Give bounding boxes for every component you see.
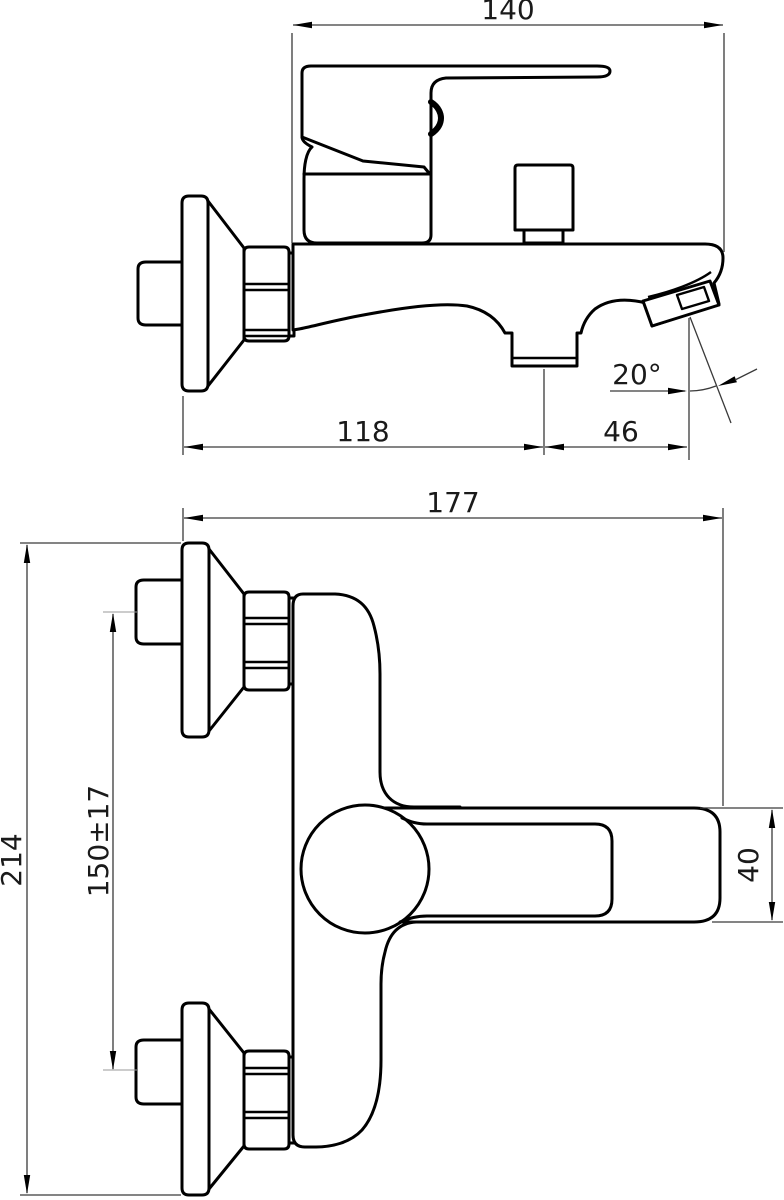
side-view bbox=[138, 66, 723, 391]
escutcheon-flange bbox=[182, 543, 209, 737]
arrowhead bbox=[184, 515, 203, 521]
arrowhead bbox=[293, 22, 312, 28]
dim-label-spout-depth: 140 bbox=[481, 0, 534, 26]
hex-nut bbox=[244, 247, 289, 341]
leader-tail bbox=[735, 369, 757, 380]
dimension-118: 118 bbox=[183, 369, 544, 455]
dim-label-outlet-to-tip: 46 bbox=[603, 415, 639, 448]
hex-nut bbox=[244, 1051, 289, 1149]
arrowhead bbox=[703, 515, 722, 521]
arrowhead bbox=[769, 902, 775, 921]
arrowhead bbox=[524, 444, 543, 450]
escutcheon-cone bbox=[208, 201, 244, 386]
supply-stub bbox=[138, 262, 182, 325]
drawing-page: 140 118 46 20° bbox=[0, 0, 784, 1200]
dim-label-overall-depth: 177 bbox=[426, 486, 479, 519]
supply-stub bbox=[136, 580, 182, 644]
dim-label-connection-centres: 150±17 bbox=[82, 785, 115, 898]
dim-label-spout-height: 40 bbox=[732, 847, 765, 883]
dim-label-wall-to-outlet: 118 bbox=[336, 415, 389, 448]
escutcheon-flange bbox=[182, 196, 208, 391]
angle-reference-line bbox=[690, 317, 731, 423]
hex-nut bbox=[244, 592, 289, 690]
arrowhead bbox=[24, 1175, 30, 1194]
arrowhead bbox=[668, 388, 687, 394]
dimension-angle-20: 20° bbox=[610, 317, 757, 423]
arrowhead bbox=[545, 444, 564, 450]
dimension-150: 150±17 bbox=[82, 612, 137, 1070]
escutcheon-cone bbox=[209, 1009, 244, 1189]
technical-drawing: 140 118 46 20° bbox=[0, 0, 784, 1200]
diverter-stem bbox=[524, 230, 563, 243]
escutcheon-flange bbox=[182, 1003, 209, 1195]
escutcheon-cone bbox=[209, 549, 244, 731]
arrowhead bbox=[718, 376, 737, 386]
arrowhead bbox=[110, 613, 116, 632]
handle-cap-front bbox=[301, 805, 429, 933]
arrowhead bbox=[110, 1051, 116, 1070]
arrowhead bbox=[668, 444, 687, 450]
diverter-knob bbox=[515, 165, 573, 230]
arrowhead bbox=[24, 544, 30, 563]
dim-label-overall-height: 214 bbox=[0, 833, 28, 886]
front-view bbox=[136, 543, 720, 1195]
arrowhead bbox=[184, 444, 203, 450]
wall-connection-front-bottom bbox=[136, 1003, 294, 1195]
dim-label-spout-angle: 20° bbox=[612, 358, 662, 391]
supply-stub bbox=[136, 1040, 182, 1104]
arrowhead bbox=[769, 809, 775, 828]
angle-arc bbox=[690, 386, 716, 391]
wall-connection-front-top bbox=[136, 543, 294, 737]
arrowhead bbox=[704, 22, 723, 28]
wall-connection-side bbox=[138, 196, 294, 391]
